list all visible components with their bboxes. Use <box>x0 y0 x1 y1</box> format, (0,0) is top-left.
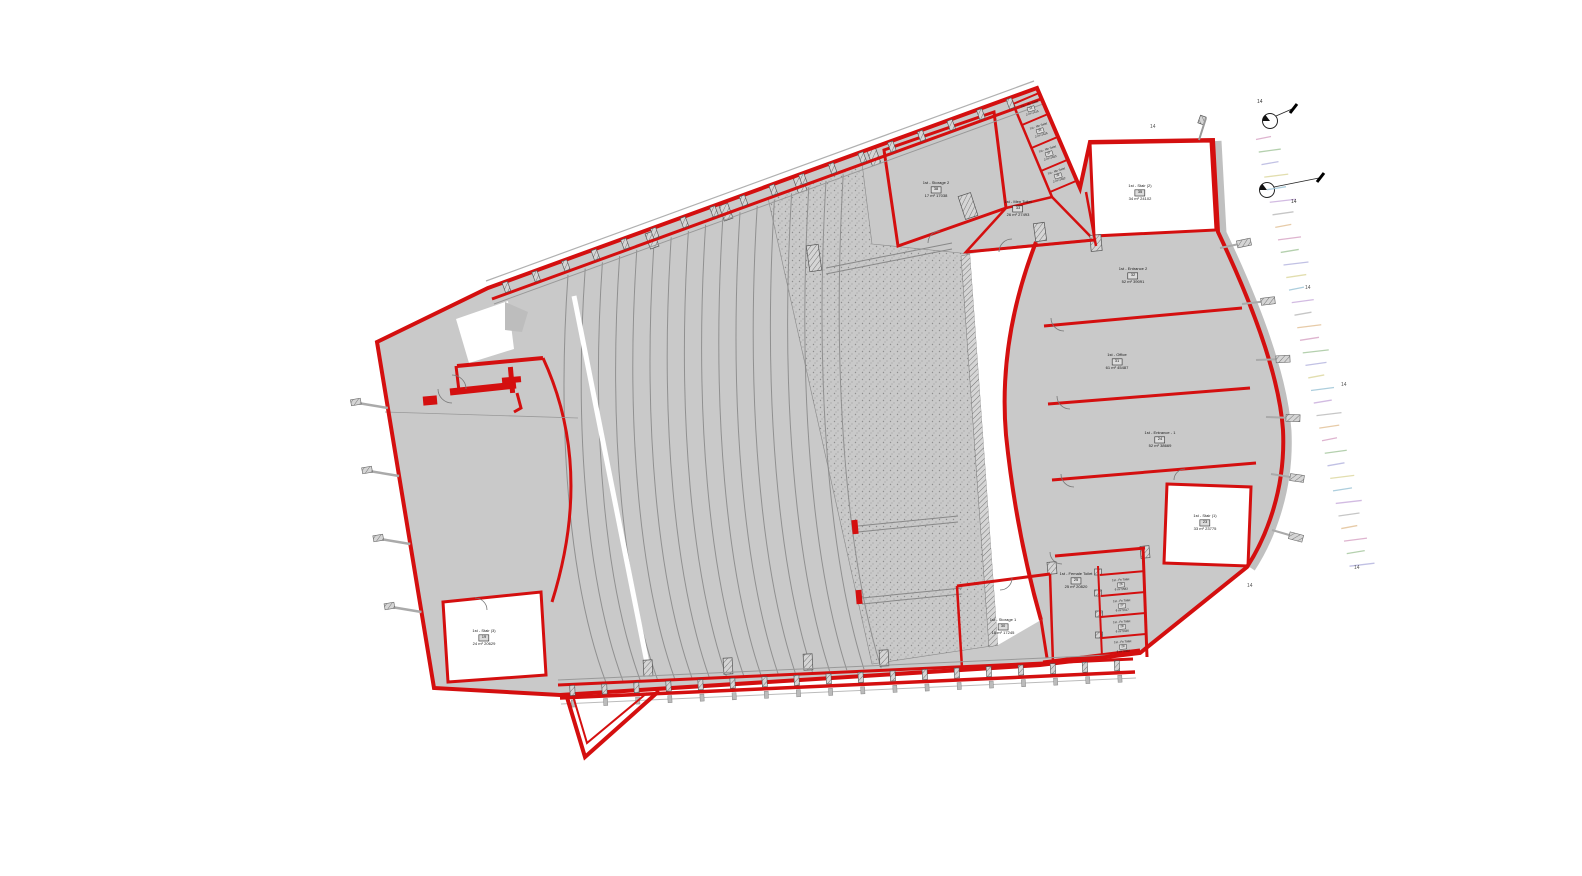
room-stair-1-floor <box>1164 484 1251 566</box>
dimension-dash <box>1330 475 1354 478</box>
dimension-dash <box>1311 388 1334 391</box>
dimension-dash <box>1303 350 1329 353</box>
dimension-dash <box>1339 513 1360 516</box>
floor-plan-canvas: 14141414141414 1st - Storage 23817 m² 17… <box>0 0 1582 876</box>
dimension-dash <box>1328 463 1345 466</box>
dimension-dash <box>1273 212 1294 215</box>
dimension-dash <box>1341 526 1357 529</box>
dimension-dash <box>1259 149 1281 152</box>
dimension-dash <box>1317 413 1342 416</box>
dimension-dash <box>1336 500 1362 503</box>
level-mark: 14 <box>1305 285 1311 291</box>
dimension-dash <box>1347 551 1365 554</box>
dimension-dash <box>1256 137 1271 140</box>
level-mark: 14 <box>1341 382 1347 388</box>
dimension-dash <box>1292 300 1314 303</box>
dimension-dash <box>1308 375 1324 378</box>
dimension-dash <box>1281 249 1299 252</box>
room-stair-3-floor <box>443 592 546 682</box>
dimension-dash <box>1286 275 1306 278</box>
dimension-dash <box>1289 287 1304 290</box>
dimension-dash <box>1325 450 1347 453</box>
dimension-dash <box>1314 400 1332 403</box>
dimension-dash <box>1306 362 1327 365</box>
dimension-dash <box>1264 174 1288 177</box>
dimension-dash <box>1284 262 1309 265</box>
dimension-dash <box>1344 538 1367 541</box>
section-marker-label: 14 <box>1257 99 1263 105</box>
dimension-dash <box>1262 162 1279 165</box>
dimension-dash <box>1267 187 1286 190</box>
dimension-dash <box>1300 337 1319 340</box>
dimension-dash <box>1333 488 1352 491</box>
floor-plan-drawing: 14141414141414 <box>0 0 1582 876</box>
level-mark: 14 <box>1150 124 1156 130</box>
dimension-dash <box>1322 438 1337 441</box>
level-mark: 14 <box>1247 583 1253 589</box>
dimension-dash <box>1278 237 1301 240</box>
section-marker-label: 14 <box>1291 199 1297 205</box>
dimension-dash <box>1319 425 1339 428</box>
level-mark: 14 <box>1354 565 1360 571</box>
dimension-dash <box>1297 325 1321 328</box>
room-stair-2-floor <box>1090 141 1216 236</box>
dimension-dash <box>1295 312 1312 315</box>
dimension-dash <box>1275 224 1291 227</box>
entry-ramp <box>566 691 659 757</box>
